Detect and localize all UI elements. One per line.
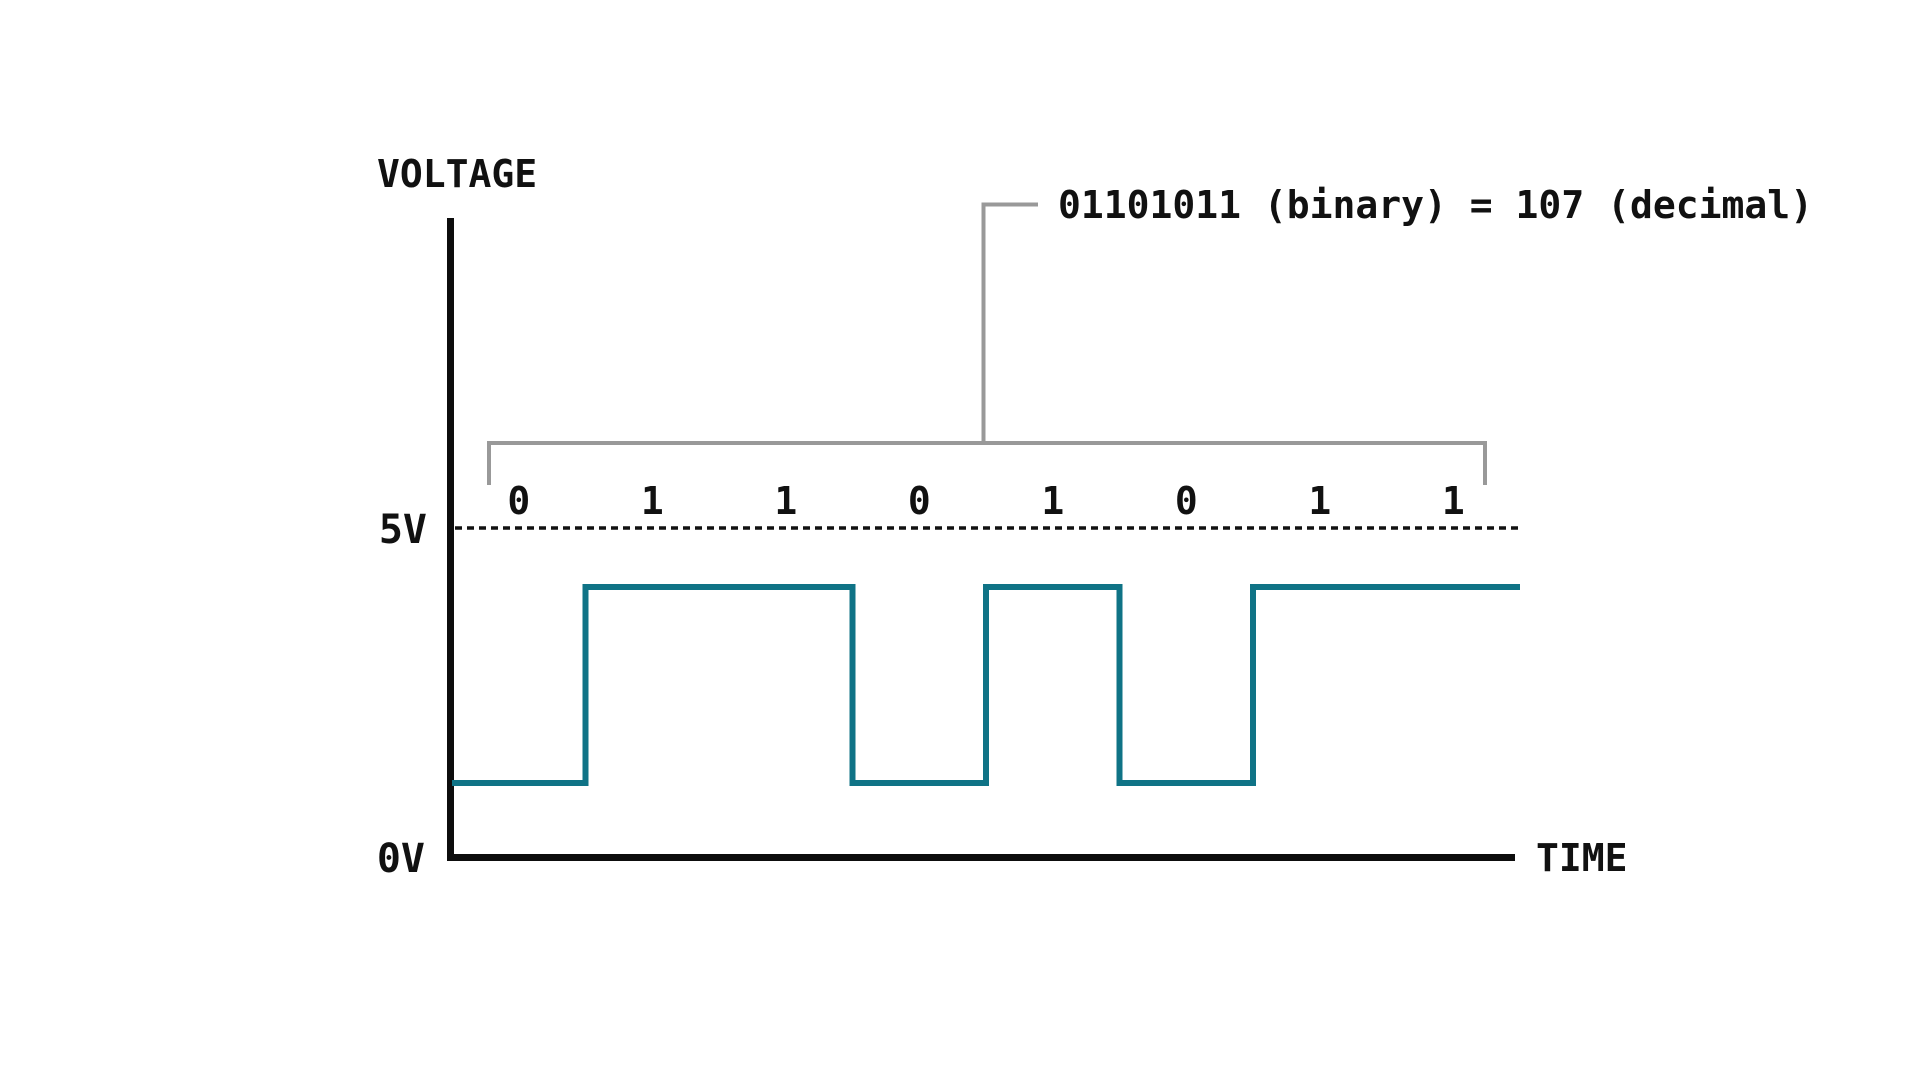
y-tick-5v-label: 5V: [379, 507, 427, 553]
diagram-canvas: VOLTAGE TIME 5V 0V 01101011 (binary) = 1…: [0, 0, 1920, 1080]
bit-label: 1: [1308, 479, 1331, 523]
annotation-text: 01101011 (binary) = 107 (decimal): [1058, 183, 1813, 227]
bit-label: 1: [1442, 479, 1465, 523]
diagram-stage: VOLTAGE TIME 5V 0V 01101011 (binary) = 1…: [0, 0, 1920, 1080]
y-tick-0v-label: 0V: [377, 836, 425, 882]
y-axis-label: VOLTAGE: [377, 152, 537, 196]
bit-label: 0: [908, 479, 931, 523]
bit-label: 1: [774, 479, 797, 523]
bit-label: 1: [641, 479, 664, 523]
bit-labels: 01101011: [507, 479, 1464, 523]
bit-label: 1: [1041, 479, 1064, 523]
x-axis-label: TIME: [1536, 836, 1628, 880]
signal-waveform: [452, 587, 1520, 783]
bit-group-bracket: [489, 443, 1485, 485]
bit-label: 0: [1175, 479, 1198, 523]
axes: [447, 218, 1515, 861]
annotation-connector: [984, 205, 1039, 442]
bit-label: 0: [507, 479, 530, 523]
